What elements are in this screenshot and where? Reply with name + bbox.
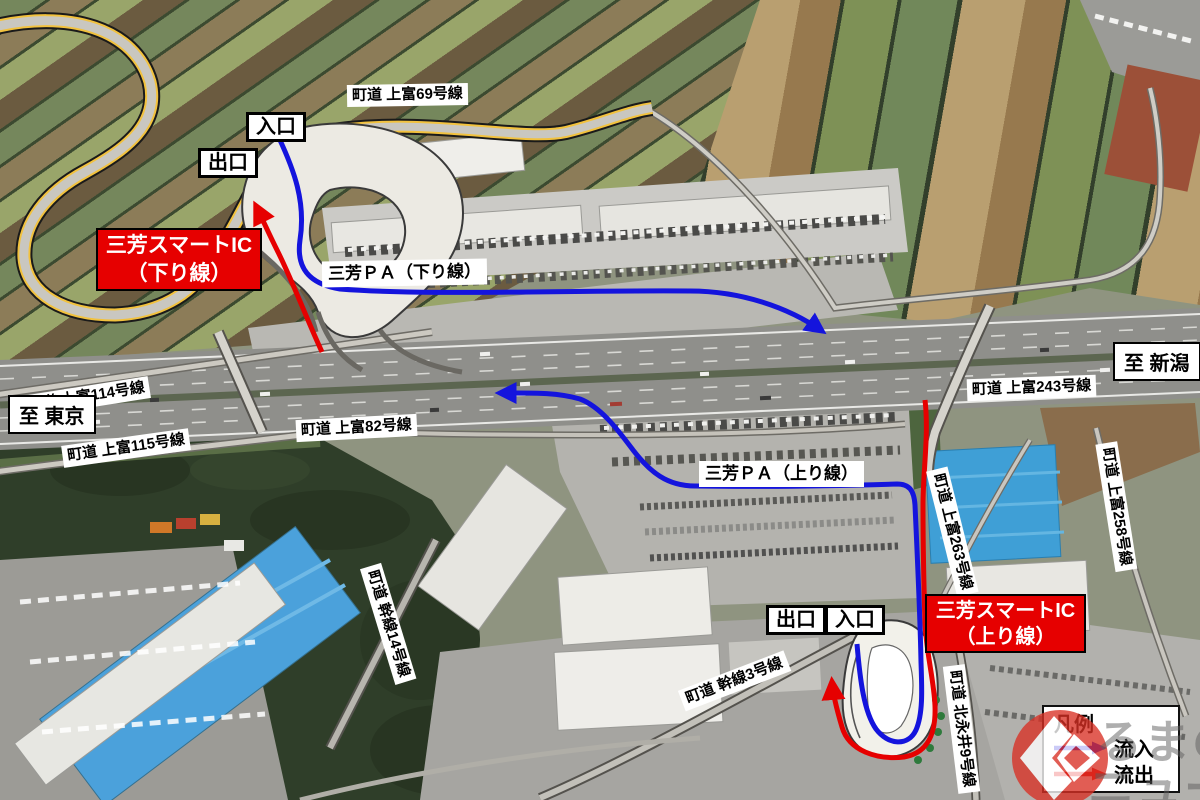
destination-label-tokyo: 至 東京 [8, 395, 96, 434]
entrance-label-down: 入口 [246, 112, 306, 142]
building-roof [558, 567, 712, 645]
red-field [1104, 64, 1200, 191]
smart-ic-label-up-line1: 三芳スマートIC [927, 598, 1084, 624]
map-artwork [0, 0, 1200, 800]
exit-label-down: 出口 [198, 148, 258, 178]
pa-label-down: 三芳ＰＡ（下り線） [322, 259, 487, 288]
exit-label-up: 出口 [766, 605, 826, 635]
road-label-kamitomi69: 町道 上富69号線 [347, 83, 468, 107]
aerial-map-figure: 町道 上富69号線 入口 出口 三芳スマートIC （下り線） 三芳ＰＡ（下り線）… [0, 0, 1200, 800]
smart-ic-label-up: 三芳スマートIC （上り線） [925, 594, 1086, 653]
smart-ic-label-down: 三芳スマートIC （下り線） [96, 228, 262, 291]
entrance-label-up: 入口 [825, 605, 885, 635]
smart-ic-label-down-line1: 三芳スマートIC [98, 232, 260, 260]
smart-ic-label-down-line2: （下り線） [98, 260, 260, 288]
pa-label-up: 三芳ＰＡ（上り線） [699, 461, 864, 487]
road-label-kamitomi243: 町道 上富243号線 [967, 375, 1097, 401]
destination-label-niigata: 至 新潟 [1113, 342, 1200, 381]
smart-ic-label-up-line2: （上り線） [927, 624, 1084, 650]
watermark-text-line2: ニュース [1088, 752, 1200, 800]
